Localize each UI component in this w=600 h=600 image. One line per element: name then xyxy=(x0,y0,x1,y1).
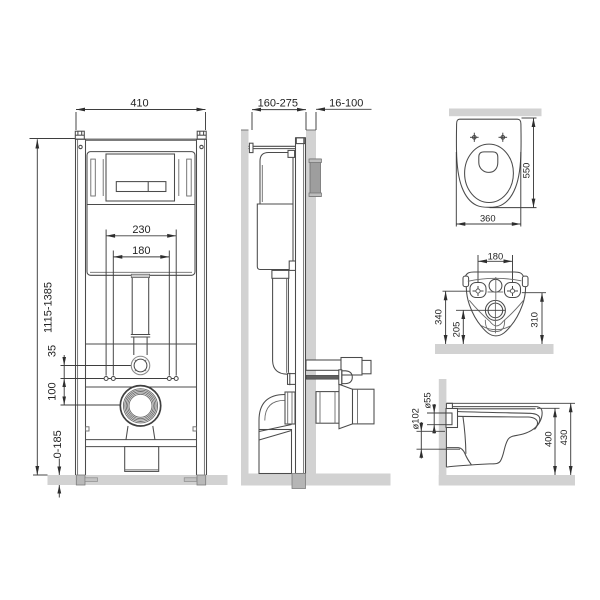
svg-text:410: 410 xyxy=(130,98,148,110)
svg-text:430: 430 xyxy=(558,430,569,446)
svg-text:550: 550 xyxy=(520,163,531,179)
svg-text:340: 340 xyxy=(432,309,443,325)
svg-text:180: 180 xyxy=(488,251,504,262)
svg-text:ø55: ø55 xyxy=(422,392,433,408)
svg-text:400: 400 xyxy=(542,431,553,447)
svg-text:360: 360 xyxy=(480,212,496,223)
svg-text:205: 205 xyxy=(450,322,461,338)
svg-text:230: 230 xyxy=(132,224,150,236)
svg-text:100: 100 xyxy=(47,382,59,400)
svg-text:310: 310 xyxy=(529,312,540,328)
svg-text:160-275: 160-275 xyxy=(258,97,298,109)
svg-text:0-185: 0-185 xyxy=(52,430,64,458)
svg-text:ø102: ø102 xyxy=(409,408,420,429)
svg-text:1115-1385: 1115-1385 xyxy=(43,282,55,333)
svg-text:16-100: 16-100 xyxy=(329,97,363,109)
svg-text:35: 35 xyxy=(47,345,59,357)
svg-text:180: 180 xyxy=(132,245,150,257)
